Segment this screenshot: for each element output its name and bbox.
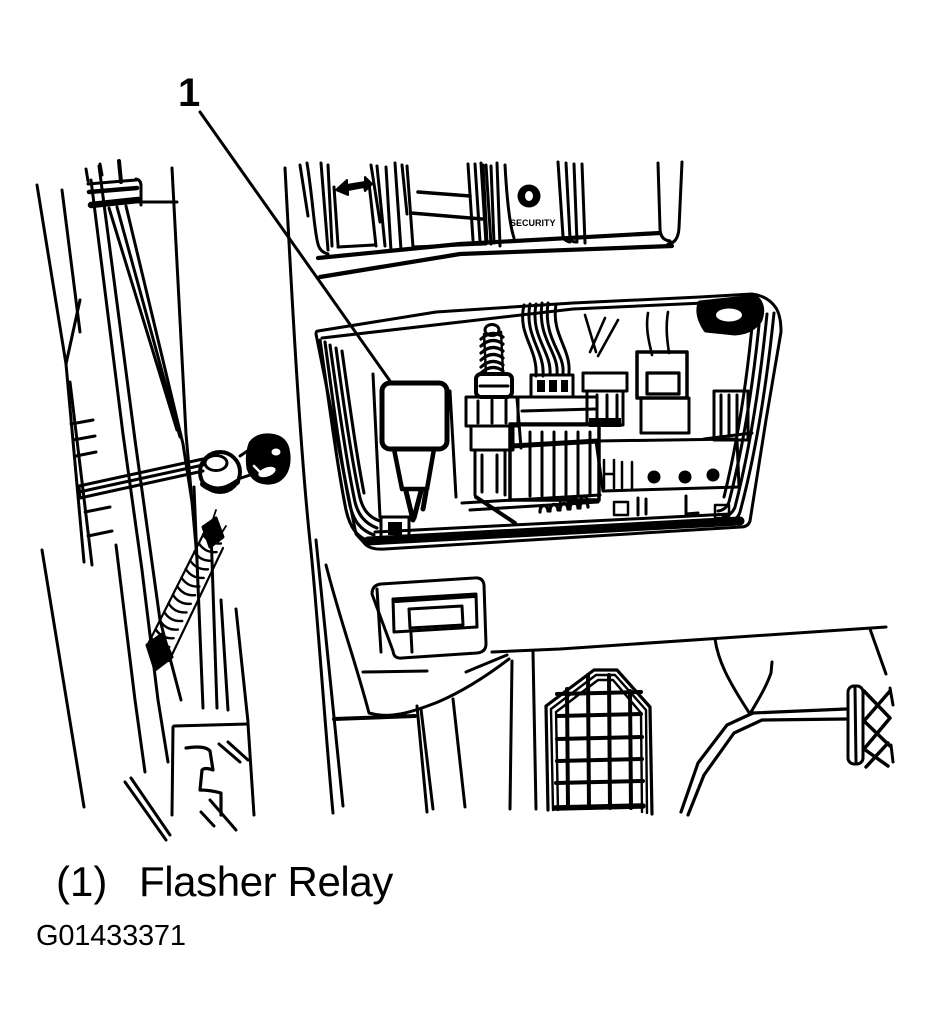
svg-text:(1): (1) (56, 858, 107, 905)
svg-text:SECURITY: SECURITY (510, 218, 556, 228)
svg-text:1: 1 (178, 71, 200, 115)
svg-text:Flasher Relay: Flasher Relay (139, 858, 393, 905)
svg-text:G01433371: G01433371 (36, 920, 186, 952)
